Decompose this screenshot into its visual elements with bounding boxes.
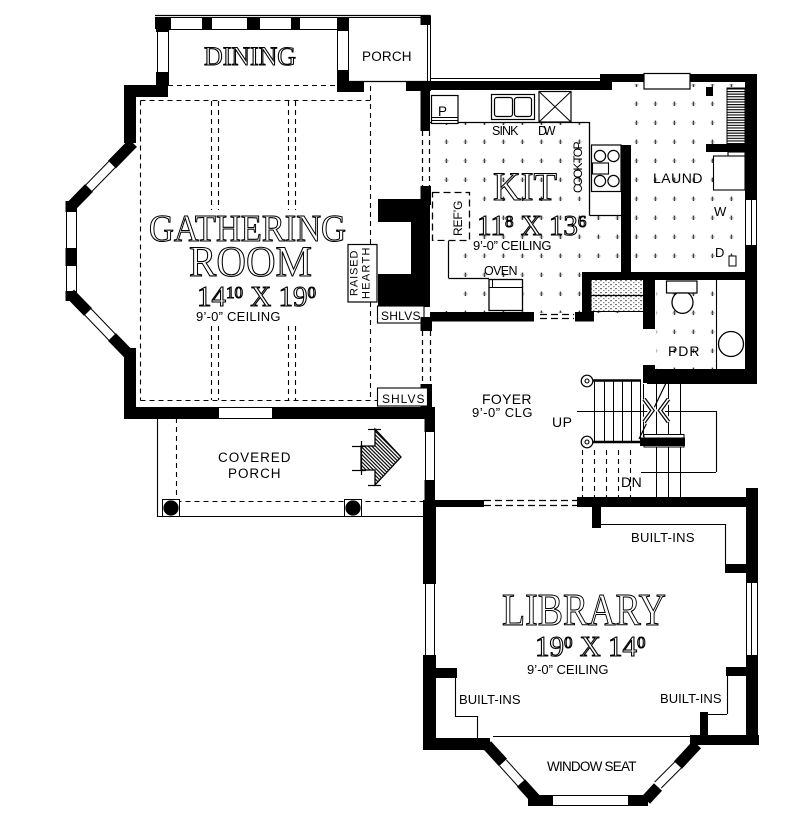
svg-text:BUILT-INS: BUILT-INS bbox=[459, 692, 521, 707]
svg-text:COOK TOP: COOK TOP bbox=[571, 141, 585, 193]
svg-text:HEARTH: HEARTH bbox=[361, 247, 373, 299]
svg-text:REF’G: REF’G bbox=[451, 200, 465, 236]
svg-text:SINK: SINK bbox=[492, 124, 519, 138]
svg-text:P: P bbox=[438, 104, 448, 119]
svg-text:D: D bbox=[715, 245, 725, 260]
svg-text:BUILT-INS: BUILT-INS bbox=[660, 691, 722, 706]
svg-text:KIT: KIT bbox=[493, 164, 557, 209]
svg-text:W: W bbox=[714, 204, 727, 219]
svg-text:DINING: DINING bbox=[204, 42, 296, 71]
svg-text:9’-0” CEILING: 9’-0” CEILING bbox=[527, 662, 609, 677]
svg-text:WINDOW SEAT: WINDOW SEAT bbox=[547, 759, 637, 774]
svg-text:RAISED: RAISED bbox=[349, 250, 361, 296]
svg-text:ROOM: ROOM bbox=[189, 239, 312, 286]
svg-text:PDR: PDR bbox=[668, 343, 700, 359]
svg-text:9’-0” CEILING: 9’-0” CEILING bbox=[196, 309, 281, 324]
svg-text:PORCH: PORCH bbox=[362, 49, 412, 64]
svg-text:9’-0” CEILING: 9’-0” CEILING bbox=[473, 238, 552, 253]
svg-text:9’-0” CLG: 9’-0” CLG bbox=[472, 405, 533, 420]
svg-text:SHLVS: SHLVS bbox=[382, 392, 425, 406]
svg-text:OVEN: OVEN bbox=[484, 264, 518, 278]
svg-text:DW: DW bbox=[538, 124, 556, 138]
svg-text:LIBRARY: LIBRARY bbox=[502, 584, 666, 635]
svg-text:LAUND: LAUND bbox=[653, 170, 703, 186]
svg-text:190 X 140: 190 X 140 bbox=[535, 631, 645, 663]
svg-text:DN: DN bbox=[621, 474, 642, 490]
svg-text:COVERED: COVERED bbox=[218, 450, 291, 465]
svg-text:BUILT-INS: BUILT-INS bbox=[631, 530, 695, 545]
svg-text:SHLVS: SHLVS bbox=[381, 309, 421, 323]
svg-text:UP: UP bbox=[552, 414, 572, 430]
svg-text:PORCH: PORCH bbox=[228, 466, 281, 481]
